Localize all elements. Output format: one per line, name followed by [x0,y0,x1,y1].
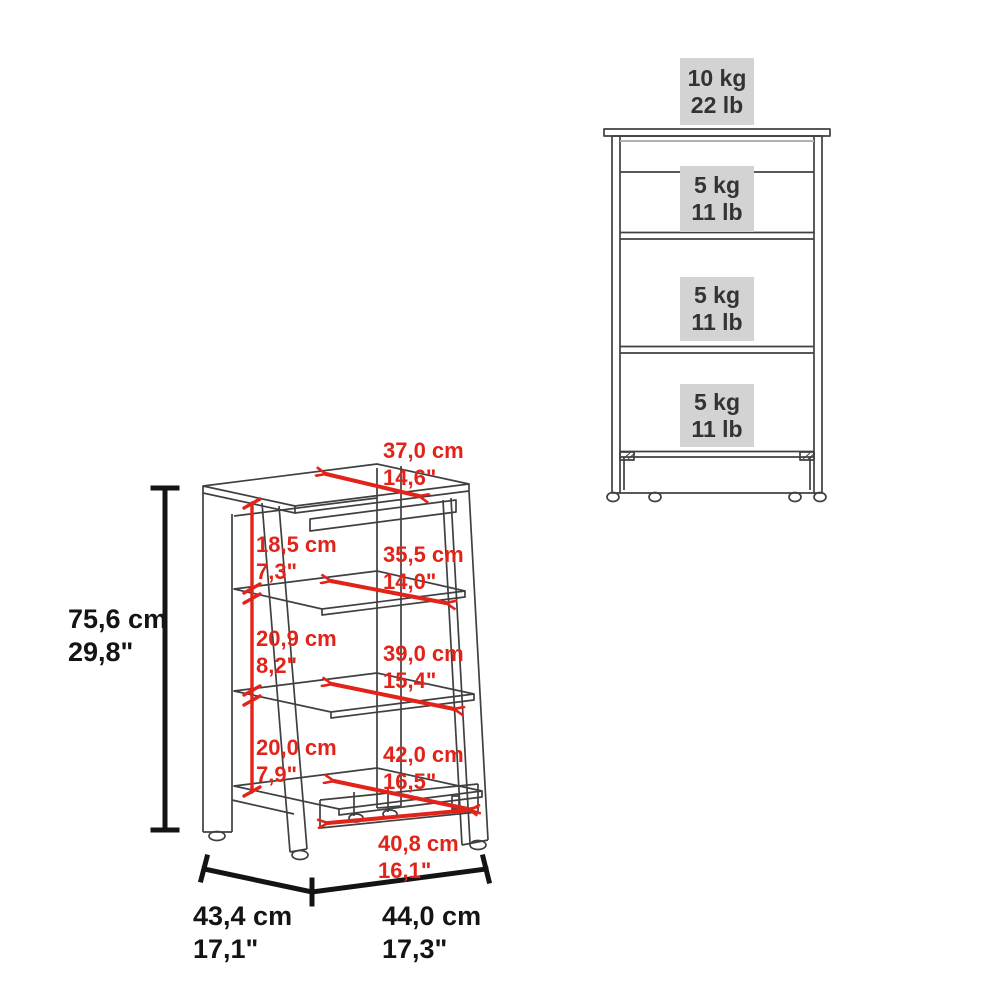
dim-in: 17,1" [193,933,292,966]
dim-in: 17,3" [382,933,481,966]
line-art [0,0,1000,1000]
dim-cm: 39,0 cm [383,640,464,667]
capacity-badge-shelf-3: 5 kg 11 lb [680,384,754,447]
dim-label-shelf-3-depth: 42,0 cm 16,5" [383,741,464,795]
dim-label-shelf-1-depth: 35,5 cm 14,0" [383,541,464,595]
dim-in: 16,5" [383,768,464,795]
capacity-kg: 5 kg [694,282,740,309]
dimension-sheet: 37,0 cm 14,6" 18,5 cm 7,3" 35,5 cm 14,0"… [0,0,1000,1000]
capacity-kg: 5 kg [694,389,740,416]
dim-in: 8,2" [256,652,337,679]
dim-label-overall-width: 44,0 cm 17,3" [382,900,481,966]
capacity-badge-top: 10 kg 22 lb [680,58,754,125]
capacity-kg: 5 kg [694,172,740,199]
dim-in: 15,4" [383,667,464,694]
capacity-badge-shelf-1: 5 kg 11 lb [680,166,754,232]
dim-in: 7,9" [256,761,337,788]
dim-cm: 18,5 cm [256,531,337,558]
capacity-badge-shelf-2: 5 kg 11 lb [680,277,754,341]
dim-cm: 20,0 cm [256,734,337,761]
dim-in: 7,3" [256,558,337,585]
dim-in: 16,1" [378,857,459,884]
dim-label-top-depth: 37,0 cm 14,6" [383,437,464,491]
dim-cm: 35,5 cm [383,541,464,568]
dim-label-bottom-width: 40,8 cm 16,1" [378,830,459,884]
dim-in: 14,0" [383,568,464,595]
dim-in: 14,6" [383,464,464,491]
dim-cm: 75,6 cm [68,603,167,636]
capacity-kg: 10 kg [688,65,747,92]
dim-label-compartment-3: 20,0 cm 7,9" [256,734,337,788]
capacity-lb: 11 lb [691,309,742,336]
dim-label-compartment-2: 20,9 cm 8,2" [256,625,337,679]
dim-cm: 44,0 cm [382,900,481,933]
dim-cm: 43,4 cm [193,900,292,933]
capacity-lb: 22 lb [691,92,743,119]
dim-label-overall-depth: 43,4 cm 17,1" [193,900,292,966]
dim-cm: 40,8 cm [378,830,459,857]
capacity-lb: 11 lb [691,416,742,443]
dim-label-shelf-2-depth: 39,0 cm 15,4" [383,640,464,694]
dim-label-compartment-1: 18,5 cm 7,3" [256,531,337,585]
dim-in: 29,8" [68,636,167,669]
capacity-lb: 11 lb [691,199,742,226]
dim-cm: 42,0 cm [383,741,464,768]
dim-cm: 20,9 cm [256,625,337,652]
dim-label-overall-height: 75,6 cm 29,8" [68,603,167,669]
dim-cm: 37,0 cm [383,437,464,464]
